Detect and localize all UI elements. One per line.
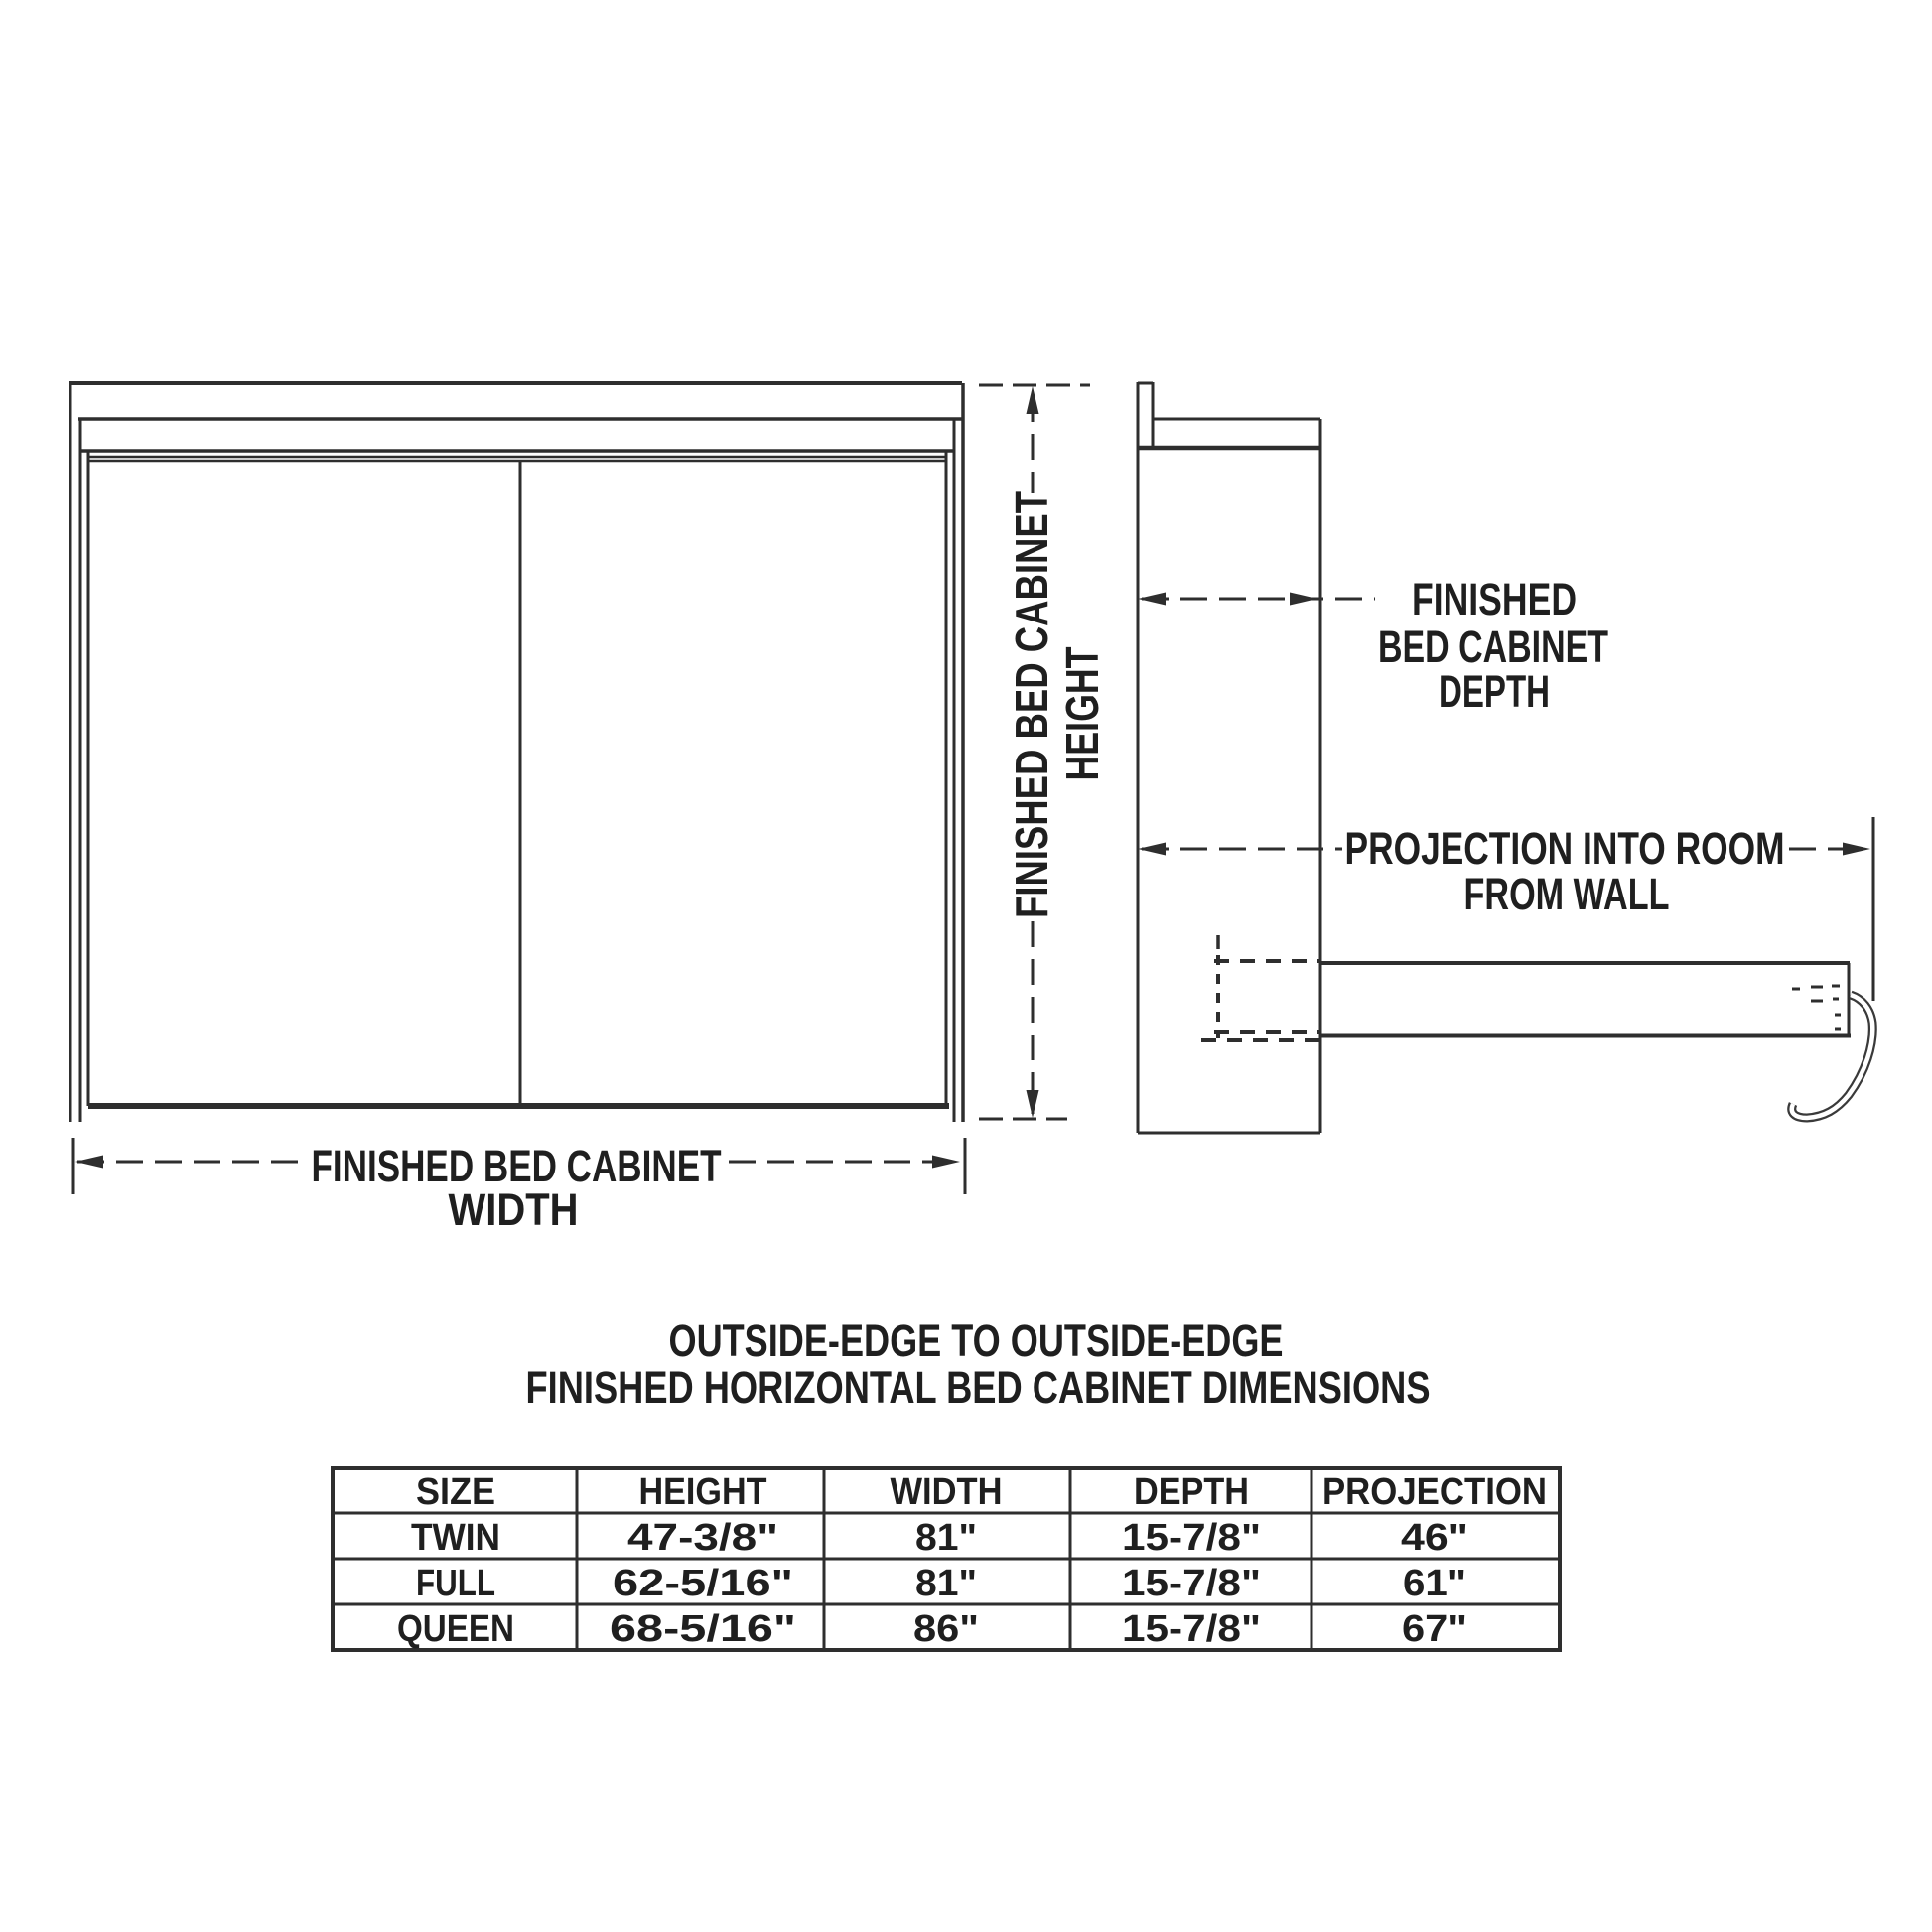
svg-text:FINISHED: FINISHED [1412, 574, 1577, 624]
svg-text:15-7/8": 15-7/8" [1122, 1517, 1261, 1559]
svg-text:61": 61" [1403, 1563, 1466, 1604]
svg-text:81": 81" [915, 1517, 977, 1559]
svg-text:15-7/8": 15-7/8" [1122, 1563, 1261, 1604]
svg-text:WIDTH: WIDTH [891, 1471, 1003, 1513]
svg-text:62-5/16": 62-5/16" [613, 1563, 793, 1604]
svg-text:46": 46" [1401, 1517, 1468, 1559]
svg-text:TWIN: TWIN [411, 1517, 500, 1559]
svg-text:SIZE: SIZE [416, 1471, 495, 1513]
svg-text:DEPTH: DEPTH [1439, 666, 1550, 717]
svg-text:15-7/8": 15-7/8" [1122, 1608, 1261, 1650]
svg-text:FINISHED BED CABINET: FINISHED BED CABINET [1006, 491, 1057, 918]
svg-text:FULL: FULL [416, 1563, 495, 1604]
svg-text:67": 67" [1402, 1608, 1467, 1650]
svg-text:PROJECTION INTO ROOM: PROJECTION INTO ROOM [1345, 823, 1785, 874]
svg-text:47-3/8": 47-3/8" [627, 1517, 778, 1559]
svg-text:81": 81" [915, 1563, 977, 1604]
svg-text:FINISHED HORIZONTAL BED CABINE: FINISHED HORIZONTAL BED CABINET DIMENSIO… [526, 1362, 1431, 1413]
svg-text:68-5/16": 68-5/16" [610, 1608, 796, 1650]
svg-text:BED CABINET: BED CABINET [1378, 621, 1608, 672]
svg-text:FROM WALL: FROM WALL [1464, 869, 1670, 919]
svg-text:HEIGHT: HEIGHT [1056, 647, 1108, 781]
svg-text:OUTSIDE-EDGE TO OUTSIDE-EDGE: OUTSIDE-EDGE TO OUTSIDE-EDGE [669, 1315, 1284, 1366]
svg-text:QUEEN: QUEEN [397, 1608, 514, 1650]
svg-text:WIDTH: WIDTH [449, 1184, 579, 1235]
svg-text:86": 86" [913, 1608, 979, 1650]
svg-text:HEIGHT: HEIGHT [639, 1471, 767, 1513]
svg-text:DEPTH: DEPTH [1134, 1471, 1249, 1513]
svg-text:PROJECTION: PROJECTION [1322, 1471, 1547, 1513]
